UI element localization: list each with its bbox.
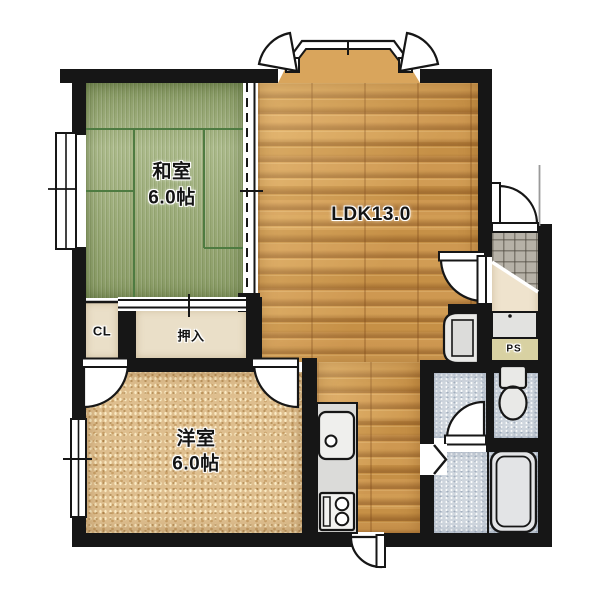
label-yoshitsu-size: 6.0帖: [172, 449, 219, 476]
entrance-door: [491, 183, 538, 232]
label-washitsu-name: 和室: [152, 157, 191, 184]
label-closet: CL: [93, 324, 111, 339]
oshiire-sliding-door: [118, 294, 246, 317]
casement-arc-left: [259, 33, 297, 71]
label-yoshitsu-name: 洋室: [176, 424, 215, 451]
shoe-cabinet: [492, 312, 537, 338]
label-washitsu-size: 6.0帖: [148, 183, 195, 210]
label-pipe-space: PS: [506, 344, 521, 355]
plan-linework: [0, 0, 600, 600]
washitsu-window: [48, 133, 86, 249]
sliding-partition: [240, 83, 263, 293]
casement-arc-right: [400, 33, 438, 71]
wash-basin: [444, 313, 478, 363]
bathtub: [491, 451, 536, 532]
yoshitsu-window: [63, 419, 92, 517]
balcony-door: [351, 532, 385, 567]
closet-door: [82, 359, 128, 408]
floor-plan: 和室 6.0帖 LDK13.0 洋室 6.0帖 CL 押入 PS: [0, 0, 600, 600]
gas-stove: [320, 493, 354, 530]
toilet: [500, 366, 527, 420]
kitchen-sink: [319, 412, 354, 459]
tatami-grid: [85, 129, 243, 297]
folding-bath-door: [420, 444, 447, 475]
label-ldk: LDK13.0: [331, 204, 411, 226]
ldk-door: [439, 252, 486, 304]
label-oshiire: 押入: [177, 326, 204, 345]
washroom-door: [445, 402, 486, 445]
yoshitsu-door: [252, 359, 298, 408]
genkan-step: [492, 262, 538, 292]
